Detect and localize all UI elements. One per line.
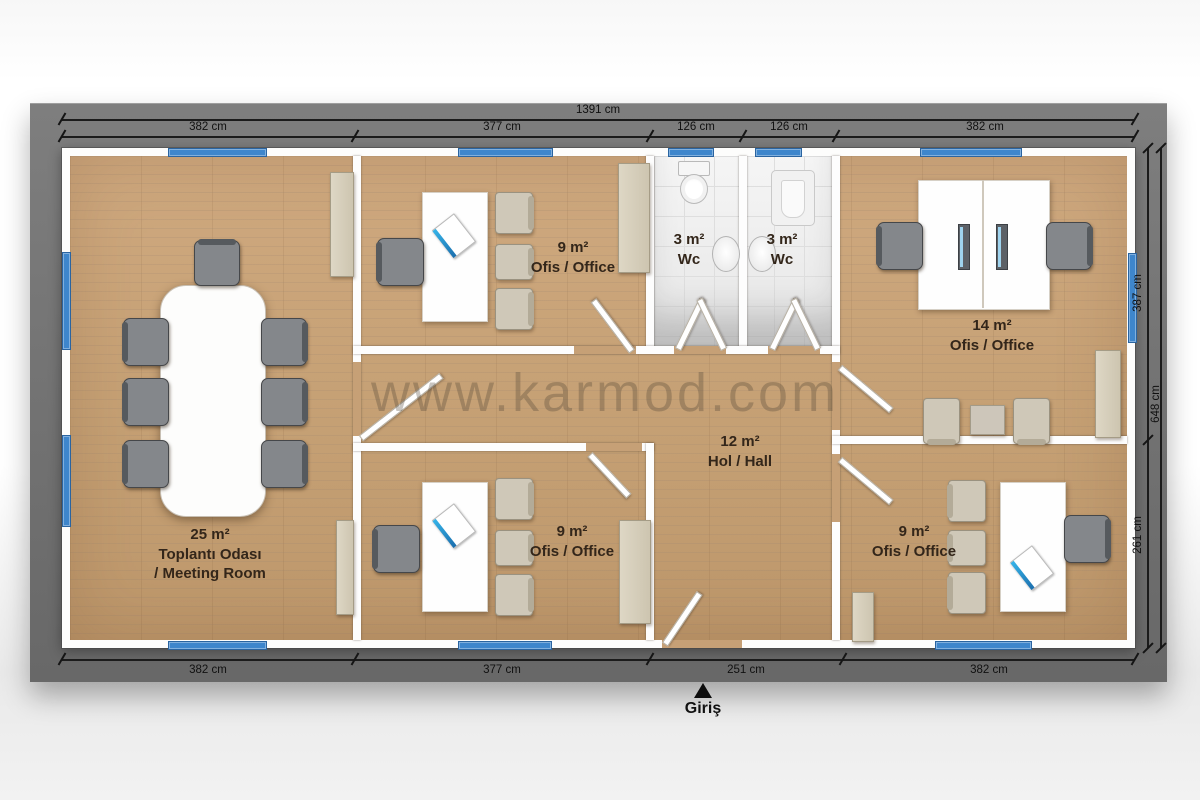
floor-plan: 25 m² Toplantı Odası / Meeting Room 9 m²… bbox=[62, 148, 1135, 648]
room-name: Wc bbox=[747, 250, 817, 270]
guest-chair bbox=[495, 478, 533, 520]
coffee-table bbox=[970, 405, 1005, 435]
office-chair bbox=[194, 240, 240, 286]
office-chair bbox=[373, 525, 420, 573]
floor-plan-image: 25 m² Toplantı Odası / Meeting Room 9 m²… bbox=[0, 0, 1200, 800]
office-chair bbox=[123, 440, 169, 488]
office-chair bbox=[1064, 515, 1110, 563]
room-name: Hol / Hall bbox=[680, 452, 800, 472]
room-area: 3 m² bbox=[654, 230, 724, 250]
dimension-label: 382 cm bbox=[168, 121, 248, 133]
window bbox=[458, 148, 553, 157]
door-opening-office-bottom-right bbox=[832, 454, 840, 522]
office-chair bbox=[123, 318, 169, 366]
room-label-hall: 12 m² Hol / Hall bbox=[680, 432, 800, 471]
room-label-office-top: 9 m² Ofis / Office bbox=[503, 238, 643, 277]
room-name: Ofis / Office bbox=[503, 258, 643, 278]
wall-wc-divider bbox=[739, 156, 747, 348]
office-chair bbox=[377, 238, 424, 286]
window bbox=[668, 148, 714, 157]
dimension-label: 261 cm bbox=[1132, 503, 1144, 567]
guest-chair bbox=[948, 480, 986, 522]
room-name-tr: Toplantı Odası bbox=[120, 545, 300, 565]
desk-divider bbox=[982, 180, 984, 308]
window bbox=[935, 641, 1032, 650]
window bbox=[458, 641, 552, 650]
room-label-office-right: 14 m² Ofis / Office bbox=[912, 316, 1072, 355]
office-chair bbox=[123, 378, 169, 426]
wall-office-right-south bbox=[832, 436, 1127, 444]
entrance-label: Giriş bbox=[671, 700, 735, 718]
dimension-label: 382 cm bbox=[168, 664, 248, 676]
dimension-line-bottom bbox=[62, 659, 1135, 661]
guest-chair bbox=[495, 192, 533, 234]
dimension-line bbox=[62, 136, 1135, 138]
dimension-label: 387 cm bbox=[1132, 261, 1144, 325]
room-label-office-bottom: 9 m² Ofis / Office bbox=[502, 522, 642, 561]
conference-table bbox=[160, 285, 266, 517]
dimension-line bbox=[62, 659, 1135, 661]
dimension-label: 382 cm bbox=[949, 664, 1029, 676]
waiting-chair bbox=[923, 398, 960, 444]
window bbox=[168, 148, 267, 157]
window bbox=[168, 641, 267, 650]
room-area: 25 m² bbox=[120, 525, 300, 545]
room-area: 9 m² bbox=[502, 522, 642, 542]
room-label-wc-right: 3 m² Wc bbox=[747, 230, 817, 269]
window bbox=[755, 148, 802, 157]
room-name: Ofis / Office bbox=[844, 542, 984, 562]
dimension-label: 126 cm bbox=[666, 121, 726, 133]
room-area: 9 m² bbox=[503, 238, 643, 258]
dimension-label: 382 cm bbox=[945, 121, 1025, 133]
door-opening-meeting-room bbox=[353, 362, 361, 436]
laptop-icon bbox=[958, 224, 970, 270]
double-desk bbox=[918, 180, 1050, 310]
room-label-office-bottom-right: 9 m² Ofis / Office bbox=[844, 522, 984, 561]
dimension-label: 377 cm bbox=[462, 664, 542, 676]
dimension-line-right-segments bbox=[1147, 148, 1149, 648]
toilet-icon bbox=[680, 174, 708, 204]
guest-chair bbox=[495, 574, 533, 616]
door-opening-office-right bbox=[832, 362, 840, 430]
guest-chair bbox=[495, 288, 533, 330]
room-label-wc-left: 3 m² Wc bbox=[654, 230, 724, 269]
dimension-label: 126 cm bbox=[759, 121, 819, 133]
waiting-chair bbox=[1013, 398, 1050, 444]
room-area: 14 m² bbox=[912, 316, 1072, 336]
room-name: Ofis / Office bbox=[912, 336, 1072, 356]
squat-toilet-icon bbox=[781, 180, 805, 218]
dimension-label: 251 cm bbox=[706, 664, 786, 676]
office-chair bbox=[877, 222, 923, 270]
office-chair bbox=[261, 318, 307, 366]
window bbox=[62, 435, 71, 527]
office-chair bbox=[1046, 222, 1092, 270]
room-area: 3 m² bbox=[747, 230, 817, 250]
entrance-opening bbox=[662, 640, 742, 648]
room-label-meeting: 25 m² Toplantı Odası / Meeting Room bbox=[120, 525, 300, 584]
cabinet bbox=[1095, 350, 1121, 438]
window bbox=[920, 148, 1022, 157]
room-area: 9 m² bbox=[844, 522, 984, 542]
dimension-label: 377 cm bbox=[462, 121, 542, 133]
room-area: 12 m² bbox=[680, 432, 800, 452]
cabinet bbox=[336, 520, 354, 615]
laptop-icon bbox=[996, 224, 1008, 270]
office-chair bbox=[261, 378, 307, 426]
room-name: Wc bbox=[654, 250, 724, 270]
office-chair bbox=[261, 440, 307, 488]
dimension-label: 1391 cm bbox=[548, 104, 648, 116]
cabinet bbox=[330, 172, 354, 277]
room-name: Ofis / Office bbox=[502, 542, 642, 562]
dimension-line bbox=[1147, 148, 1149, 648]
window bbox=[62, 252, 71, 350]
dimension-line-top-segments bbox=[62, 136, 1135, 138]
guest-chair bbox=[948, 572, 986, 614]
room-name-en: / Meeting Room bbox=[120, 564, 300, 584]
door-opening-office-bottom bbox=[586, 443, 642, 451]
dimension-label: 648 cm bbox=[1150, 372, 1162, 436]
entrance-arrow-icon bbox=[694, 683, 712, 698]
cabinet bbox=[852, 592, 874, 642]
